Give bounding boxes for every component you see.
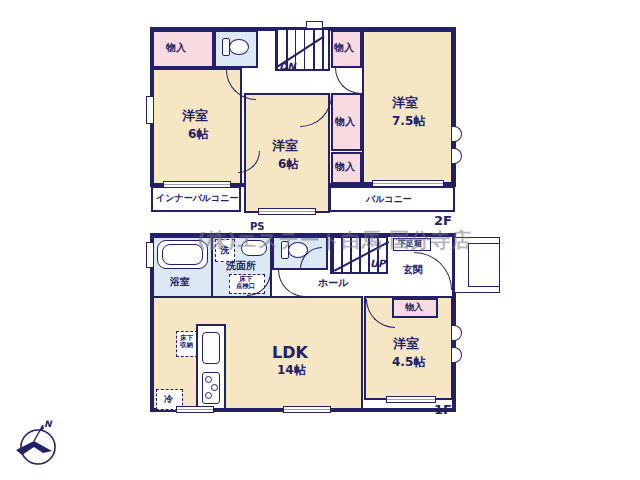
closet-label: 物入 [334, 42, 354, 55]
window [306, 21, 323, 29]
room-label: 洋室 [393, 336, 419, 352]
window [176, 406, 214, 413]
porch-step [468, 243, 500, 287]
watermark-text: (株)エステート白馬 国分寺店 [197, 227, 472, 254]
casement-window [452, 325, 462, 341]
closet-label: 物入 [335, 161, 355, 174]
room-size: 14帖 [277, 363, 306, 378]
casement-window [452, 148, 462, 164]
floor-plan-canvas: 物入 物入 物入 物入 DN 洋室 6帖 洋室 6帖 洋室 7.5帖 インナーバ… [0, 0, 640, 480]
window [146, 242, 154, 268]
inner-balcony-label: インナーバルコニー [156, 193, 238, 204]
window [163, 181, 231, 188]
room-size: 6帖 [278, 157, 298, 172]
closet-label: 物入 [166, 42, 186, 55]
stairs-dn-label: DN [279, 61, 296, 74]
window [386, 396, 436, 403]
stove-burner [211, 384, 218, 391]
window [283, 406, 331, 413]
room-size: 6帖 [188, 127, 208, 142]
bathroom-label: 浴室 [170, 276, 190, 289]
compass-north-label: N [44, 419, 53, 429]
hall-label: ホール [318, 277, 348, 290]
fridge-label: 冷 [164, 394, 173, 405]
casement-window [452, 126, 462, 142]
room-label: 洋室 [182, 108, 208, 124]
underfloor-storage-label: 床下 収納 [180, 335, 193, 350]
stairs-up-label: UP [370, 258, 385, 271]
room-label: 洋室 [272, 138, 298, 154]
closet-label: 物入 [405, 302, 423, 313]
casement-window [452, 347, 462, 363]
stove-burner [205, 392, 212, 399]
closet-label: 物入 [335, 116, 355, 129]
window [372, 180, 444, 187]
window [258, 208, 316, 215]
room-size: 7.5帖 [392, 114, 425, 129]
balcony-label: バルコニー [366, 194, 412, 205]
compass-icon: N [10, 416, 66, 472]
kitchen-sink-icon [202, 332, 220, 364]
window [146, 96, 154, 124]
stove-burner [205, 376, 212, 383]
floor-label-1f: 1F [434, 402, 452, 418]
room-size: 4.5帖 [392, 355, 425, 370]
room-label: LDK [272, 343, 308, 363]
room-label: 洋室 [392, 95, 418, 111]
entrance-label: 玄関 [403, 264, 423, 277]
washroom-label: 洗面所 [226, 260, 256, 273]
hatch-label: 床下 点検口 [236, 276, 256, 291]
